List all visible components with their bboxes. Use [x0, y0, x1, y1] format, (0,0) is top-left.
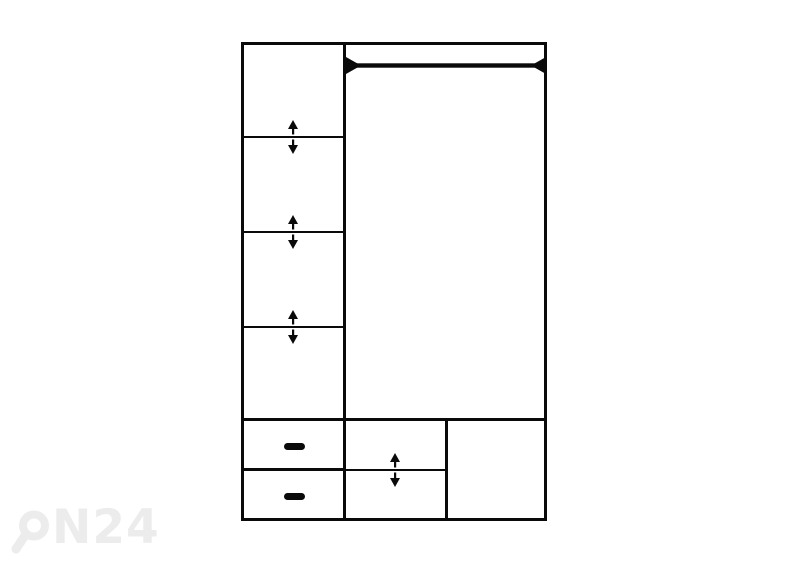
bottom-right-partition	[445, 418, 448, 521]
drawer-handle-icon	[284, 493, 305, 500]
drawer-front-divider	[244, 468, 343, 471]
adjustable-shelf-icon	[385, 452, 405, 488]
adjustable-shelf-icon	[283, 309, 303, 345]
drawer-handle-icon	[284, 443, 305, 450]
wardrobe-schematic: N24	[0, 0, 792, 566]
watermark-text: N24	[52, 502, 160, 555]
magnifier-o-icon	[16, 515, 45, 550]
bottom-row-partition	[241, 418, 547, 421]
hanging-rail-icon	[346, 54, 546, 77]
adjustable-shelf-icon	[283, 214, 303, 250]
center-partition	[343, 42, 346, 521]
adjustable-shelf-icon	[283, 119, 303, 155]
watermark-logo: N24	[10, 502, 170, 562]
